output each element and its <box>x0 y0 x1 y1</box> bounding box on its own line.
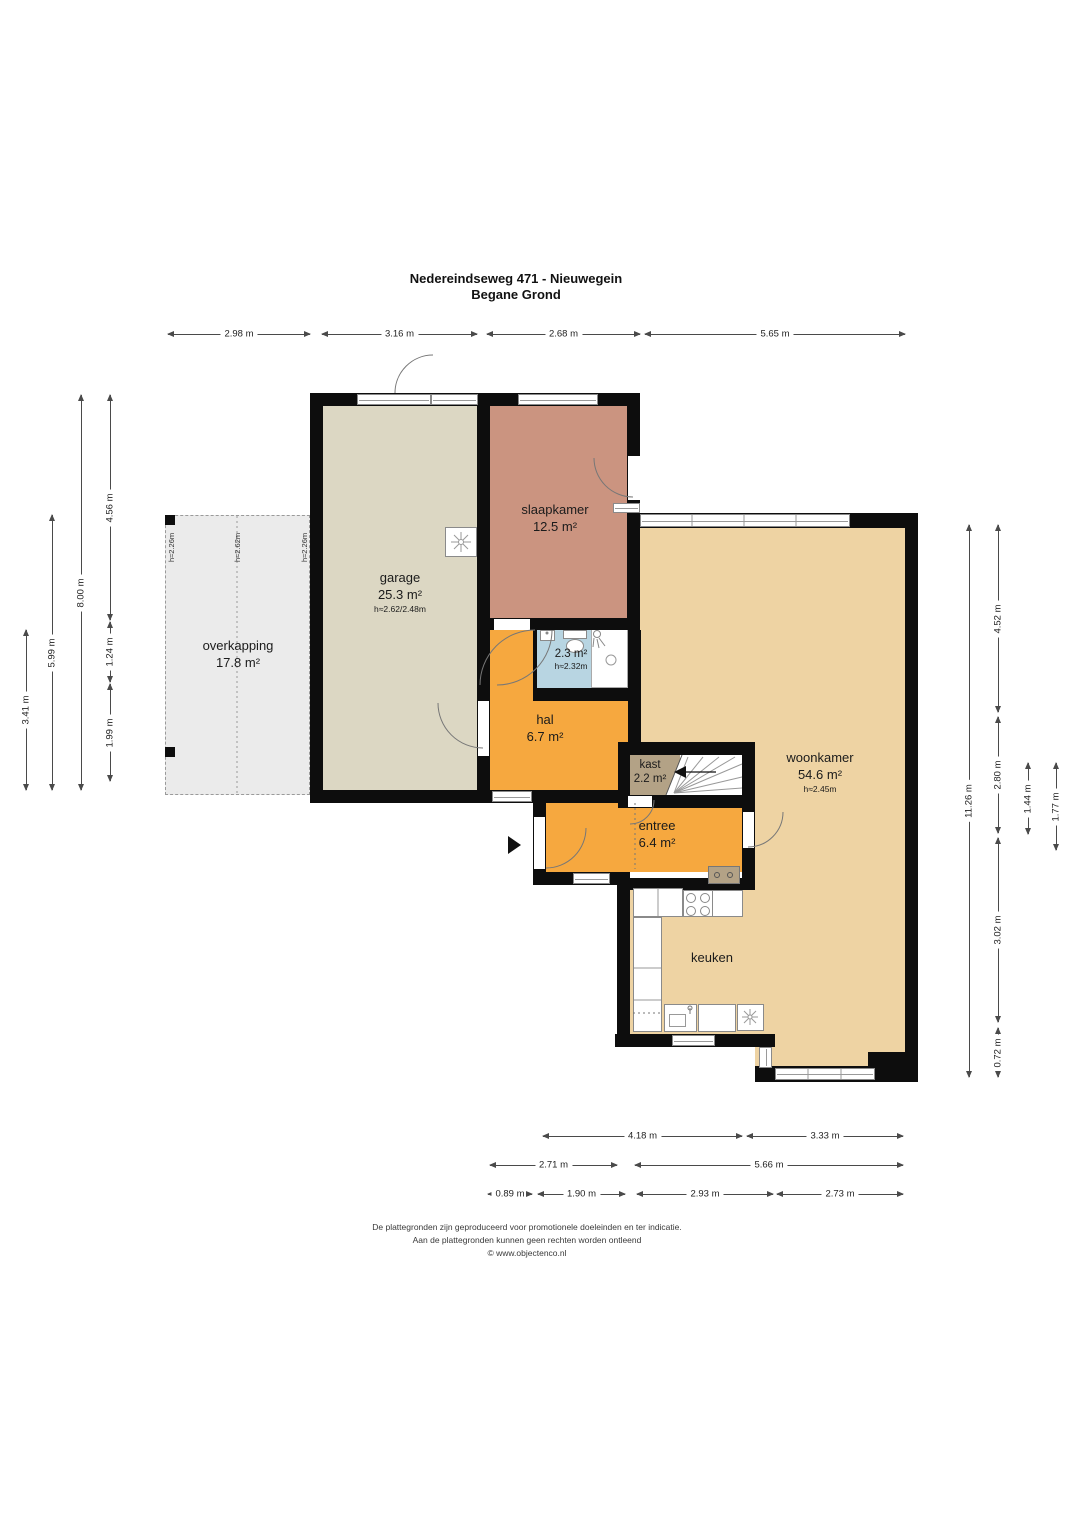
dimension-label: 0.72 m <box>993 1034 1004 1071</box>
dimension: 2.98 m <box>168 334 310 335</box>
room-name: entree <box>639 818 676 833</box>
dimension-label: 5.66 m <box>750 1160 787 1171</box>
room-name: garage <box>380 570 420 585</box>
dimension: 2.93 m <box>637 1194 773 1195</box>
kitchen-counter <box>633 917 662 1032</box>
kitchen-counter <box>633 888 683 917</box>
room-area: 6.4 m² <box>639 835 676 850</box>
window <box>759 1047 772 1068</box>
dimension-label: 2.71 m <box>535 1160 572 1171</box>
window <box>492 791 532 802</box>
copyright: © www.objectenco.nl <box>0 1247 1054 1260</box>
room-area: 17.8 m² <box>216 655 260 670</box>
room-name: kast <box>639 759 660 771</box>
dimension: 2.68 m <box>487 334 640 335</box>
dimension-label: 11.26 m <box>964 780 975 822</box>
entree-cabinet <box>708 866 740 884</box>
kitchen-counter <box>698 1004 736 1032</box>
stove <box>683 890 713 917</box>
ceiling-height-label: h≈2.26m <box>300 533 309 562</box>
dimension-label: 4.52 m <box>993 600 1004 637</box>
room-label-garage: garage 25.3 m² h≈2.62/2.48m <box>340 570 460 615</box>
dimension: 4.18 m <box>543 1136 742 1137</box>
dimension-label: 3.33 m <box>806 1131 843 1142</box>
window <box>672 1035 715 1046</box>
disclaimer-line: Aan de plattegronden kunnen geen rechten… <box>0 1234 1054 1247</box>
dimension: 5.66 m <box>635 1165 903 1166</box>
dimension-label: 1.24 m <box>105 633 116 670</box>
room-label-hal: hal 6.7 m² <box>485 712 605 746</box>
room-ceiling-height: h≈2.45m <box>750 784 890 795</box>
dimension-label: 5.99 m <box>47 634 58 671</box>
dimension: 3.16 m <box>322 334 477 335</box>
garage-door <box>357 394 431 405</box>
room-label-slaapkamer: slaapkamer 12.5 m² <box>485 502 625 536</box>
dimension-label: 2.98 m <box>220 329 257 340</box>
dimension: 1.77 m <box>1056 763 1057 850</box>
dimension-label: 2.73 m <box>821 1189 858 1200</box>
room-area: 25.3 m² <box>378 587 422 602</box>
ventilation-unit <box>445 527 477 557</box>
dimension: 4.52 m <box>998 525 999 712</box>
dimension: 1.90 m <box>538 1194 625 1195</box>
room-name: keuken <box>691 950 733 965</box>
dimension-label: 1.44 m <box>1023 780 1034 817</box>
garage-door <box>431 394 478 405</box>
wall-segment <box>310 790 477 803</box>
door-opening <box>628 456 640 500</box>
dimension-label: 2.80 m <box>993 756 1004 793</box>
wall-segment <box>628 630 641 755</box>
dimension: 3.33 m <box>747 1136 903 1137</box>
dimension: 3.02 m <box>998 838 999 1022</box>
dimension: 0.72 m <box>998 1028 999 1077</box>
room-label-overkapping: overkapping 17.8 m² <box>178 638 298 672</box>
wall-segment <box>617 885 630 1047</box>
dimension-label: 4.56 m <box>105 489 116 526</box>
room-area: 54.6 m² <box>798 767 842 782</box>
room-label-woonkamer: woonkamer 54.6 m² h≈2.45m <box>750 750 890 795</box>
room-area: 2.3 m² <box>555 648 588 660</box>
room-label-keuken: keuken <box>652 950 772 967</box>
dimension-label: 1.90 m <box>563 1189 600 1200</box>
dimension-label: 1.77 m <box>1051 788 1062 825</box>
floorplan-page: Nedereindseweg 471 - Nieuwegein Begane G… <box>0 0 1080 1527</box>
room-area: 6.7 m² <box>527 729 564 744</box>
window <box>518 394 598 405</box>
dimension-label: 8.00 m <box>76 574 87 611</box>
bathroom-sink <box>540 630 555 641</box>
room-area: 12.5 m² <box>533 519 577 534</box>
kitchen-sink <box>669 1014 686 1027</box>
wall-segment <box>905 513 918 1082</box>
dishwasher <box>737 1004 764 1031</box>
entrance-arrow-icon <box>508 836 521 854</box>
wall-segment <box>868 1052 918 1070</box>
dimension-label: 0.89 m <box>491 1189 528 1200</box>
wall-segment <box>618 742 755 755</box>
room-name: hal <box>536 712 553 727</box>
wall-segment <box>533 688 641 701</box>
ceiling-height-label: h≈2.62m <box>233 533 242 562</box>
room-hal <box>490 630 533 790</box>
room-area: 2.2 m² <box>634 773 667 785</box>
dimension: 1.44 m <box>1028 763 1029 834</box>
dimension-label: 1.99 m <box>105 714 116 751</box>
dimension: 8.00 m <box>81 395 82 790</box>
ceiling-height-label: h≈2.26m <box>167 533 176 562</box>
dimension: 1.99 m <box>110 684 111 781</box>
door-opening <box>743 812 754 848</box>
window <box>640 514 850 527</box>
window <box>775 1068 875 1080</box>
disclaimer: De plattegronden zijn geproduceerd voor … <box>0 1221 1054 1261</box>
dimension: 4.56 m <box>110 395 111 620</box>
dimension-label: 2.93 m <box>686 1189 723 1200</box>
dimension-label: 4.18 m <box>624 1131 661 1142</box>
dimension: 5.65 m <box>645 334 905 335</box>
dimension: 11.26 m <box>969 525 970 1077</box>
room-label-badkamer: 2.3 m² h≈2.32m <box>531 647 611 672</box>
kitchen-counter <box>712 890 743 917</box>
room-label-entree: entree 6.4 m² <box>597 818 717 852</box>
dimension: 1.24 m <box>110 622 111 682</box>
dimension-label: 5.65 m <box>756 329 793 340</box>
window <box>573 873 610 884</box>
door-opening <box>494 619 530 630</box>
dimension: 2.71 m <box>490 1165 617 1166</box>
toilet <box>563 630 587 639</box>
dimension: 5.99 m <box>52 515 53 790</box>
front-door-opening <box>534 817 545 869</box>
dimension: 2.80 m <box>998 717 999 833</box>
door-arc <box>395 355 433 393</box>
room-name: overkapping <box>203 638 274 653</box>
dimension-label: 3.02 m <box>993 911 1004 948</box>
room-ceiling-height: h≈2.32m <box>531 661 611 672</box>
title-floor: Begane Grond <box>0 287 1032 303</box>
dimension-label: 3.41 m <box>21 691 32 728</box>
page-title: Nedereindseweg 471 - Nieuwegein Begane G… <box>0 271 1032 302</box>
dimension: 3.41 m <box>26 630 27 790</box>
dimension-label: 3.16 m <box>381 329 418 340</box>
door-opening <box>628 796 652 807</box>
overkapping-post <box>165 747 175 757</box>
disclaimer-line: De plattegronden zijn geproduceerd voor … <box>0 1221 1054 1234</box>
room-name: woonkamer <box>786 750 853 765</box>
dimension: 0.89 m <box>488 1194 532 1195</box>
room-label-kast: kast 2.2 m² <box>610 758 690 787</box>
room-ceiling-height: h≈2.62/2.48m <box>340 604 460 615</box>
room-woonkamer <box>640 528 905 742</box>
overkapping-post <box>165 515 175 525</box>
wall-segment <box>310 393 323 803</box>
dimension-label: 2.68 m <box>545 329 582 340</box>
title-address: Nedereindseweg 471 - Nieuwegein <box>0 271 1032 287</box>
room-name: slaapkamer <box>521 502 588 517</box>
dimension: 2.73 m <box>777 1194 903 1195</box>
